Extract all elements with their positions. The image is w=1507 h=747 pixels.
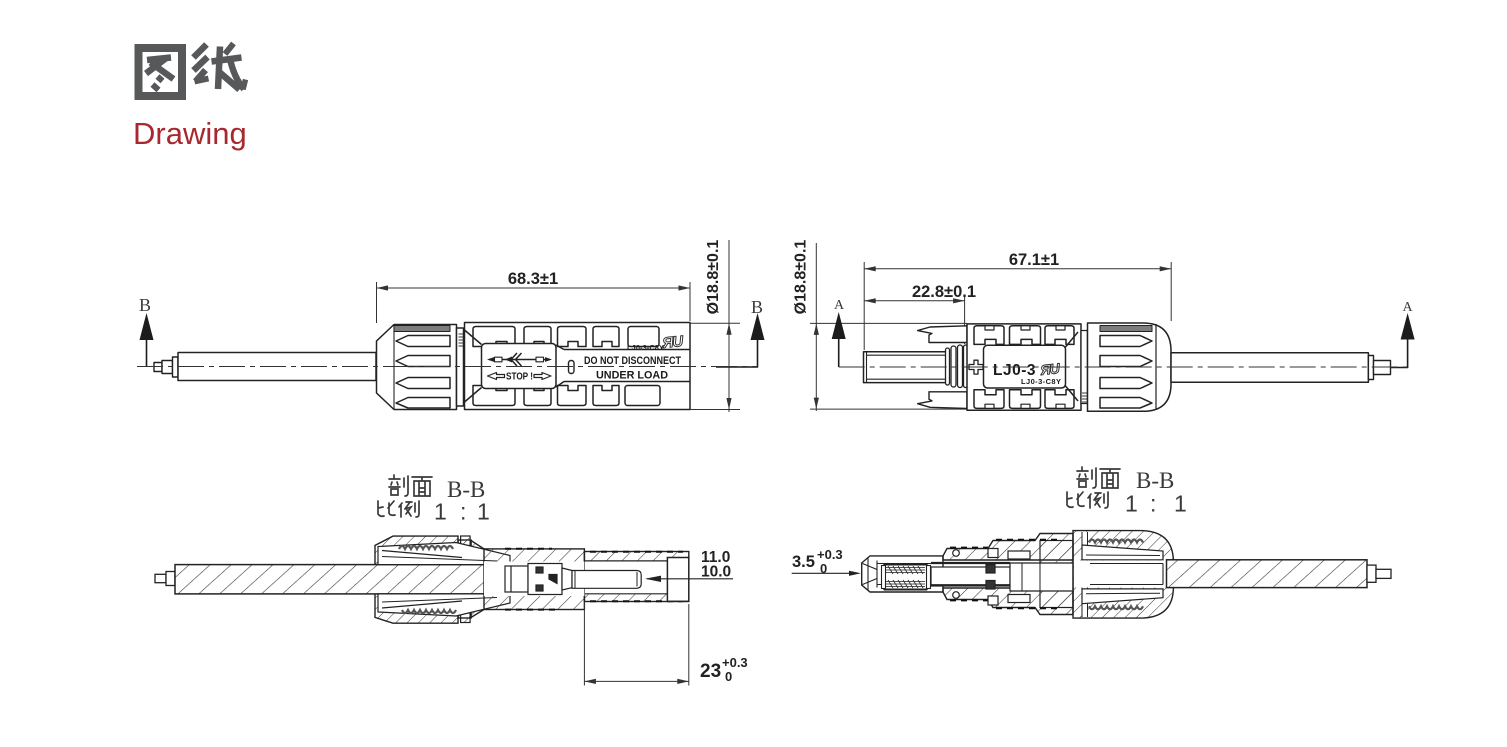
svg-text:0: 0 bbox=[725, 669, 732, 684]
svg-text:B-B: B-B bbox=[1136, 468, 1174, 493]
svg-text:+0.3: +0.3 bbox=[817, 547, 843, 562]
svg-text:10.0: 10.0 bbox=[701, 564, 731, 581]
svg-text:B: B bbox=[139, 295, 151, 315]
svg-text:DO NOT DISCONNECT: DO NOT DISCONNECT bbox=[584, 355, 681, 367]
svg-text::: : bbox=[460, 499, 466, 525]
svg-text:Ø18.8±0.1: Ø18.8±0.1 bbox=[705, 240, 722, 315]
svg-text:1: 1 bbox=[1125, 491, 1138, 517]
svg-text:67.1±1: 67.1±1 bbox=[1009, 251, 1059, 269]
svg-text:3.5: 3.5 bbox=[792, 553, 815, 571]
svg-text:Ø18.8±0.1: Ø18.8±0.1 bbox=[793, 240, 810, 315]
svg-text:22.8±0.1: 22.8±0.1 bbox=[912, 283, 976, 301]
svg-text:ЯU: ЯU bbox=[1039, 360, 1062, 378]
svg-text:1: 1 bbox=[1174, 491, 1187, 517]
svg-text:1: 1 bbox=[477, 499, 490, 525]
svg-text:A: A bbox=[1403, 300, 1414, 315]
svg-text:23: 23 bbox=[700, 661, 721, 682]
svg-text:+0.3: +0.3 bbox=[722, 655, 748, 670]
svg-text:68.3±1: 68.3±1 bbox=[508, 270, 558, 288]
svg-text:UNDER LOAD: UNDER LOAD bbox=[596, 370, 668, 382]
svg-text:A: A bbox=[834, 298, 845, 313]
svg-text:LJ0-3-C8Y: LJ0-3-C8Y bbox=[1021, 377, 1061, 386]
svg-text:STOP !: STOP ! bbox=[506, 371, 533, 383]
svg-text:LJ0-3-C8Y: LJ0-3-C8Y bbox=[627, 343, 664, 352]
svg-text:B: B bbox=[751, 297, 763, 317]
svg-text::: : bbox=[1150, 491, 1156, 517]
svg-text:1: 1 bbox=[434, 499, 447, 525]
svg-text:Drawing: Drawing bbox=[133, 116, 247, 151]
svg-text:ЯU: ЯU bbox=[661, 333, 686, 352]
